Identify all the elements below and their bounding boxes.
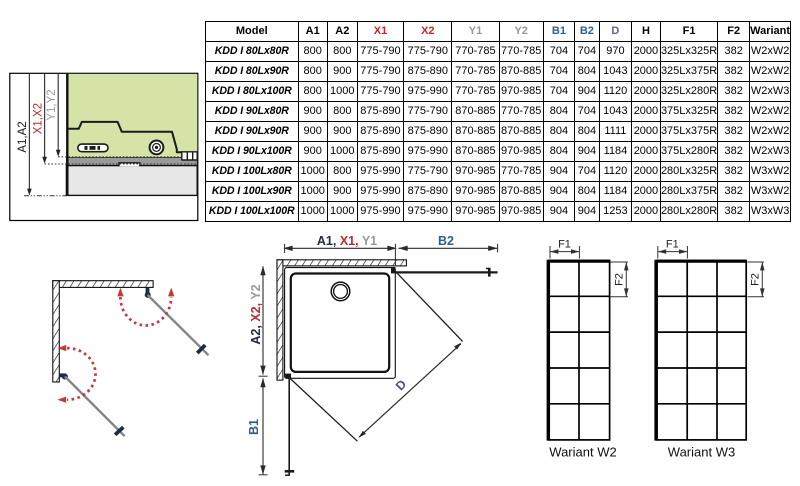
svg-text:Wariant W3: Wariant W3 xyxy=(668,445,735,460)
svg-text:A2, X2, Y2: A2, X2, Y2 xyxy=(249,284,263,344)
svg-text:A1,A2: A1,A2 xyxy=(17,121,29,152)
svg-text:Wariant W2: Wariant W2 xyxy=(549,445,616,460)
svg-text:B2: B2 xyxy=(438,234,454,248)
svg-text:Y1,Y2: Y1,Y2 xyxy=(46,89,58,120)
svg-text:F1: F1 xyxy=(558,239,571,251)
svg-text:A1, X1, Y1: A1, X1, Y1 xyxy=(317,234,377,248)
svg-text:F2: F2 xyxy=(750,273,762,286)
svg-text:X1,X2: X1,X2 xyxy=(33,103,45,134)
svg-text:F1: F1 xyxy=(666,239,679,251)
svg-text:F2: F2 xyxy=(614,273,626,286)
svg-text:D: D xyxy=(393,377,409,393)
svg-text:B1: B1 xyxy=(247,419,261,435)
